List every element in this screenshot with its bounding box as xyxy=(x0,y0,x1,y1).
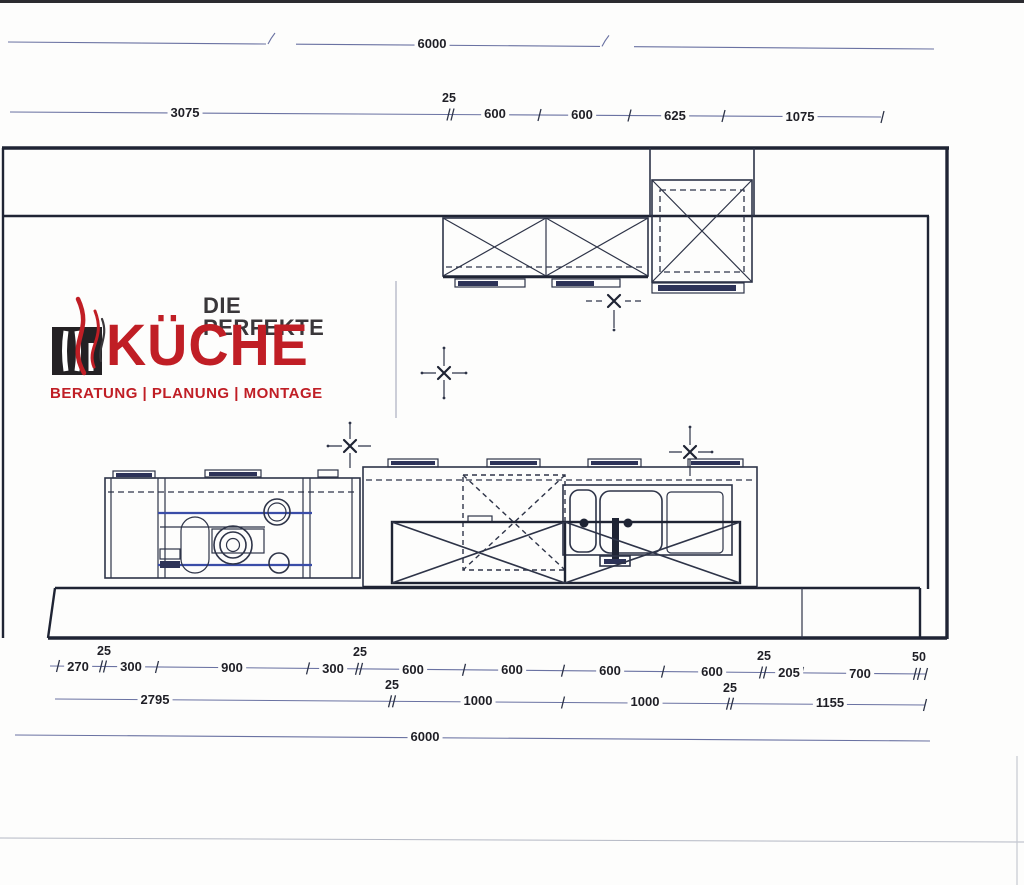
dimension-line-top-total xyxy=(8,33,934,49)
scanned-kitchen-plan: DIE PERFEKTE KÜCHE BERATUNG | PLANUNG | … xyxy=(0,0,1024,885)
dim-mid-3: 1000 xyxy=(628,695,663,709)
dim-mid-5: 1155 xyxy=(813,696,847,710)
dim-upper-2: 600 xyxy=(481,107,509,121)
tall-wall-cabinet xyxy=(650,148,754,293)
dim-base-4: 300 xyxy=(319,662,347,676)
dim-base-9: 600 xyxy=(698,665,726,679)
dim-base-2: 300 xyxy=(117,660,145,674)
dim-mid-0: 2795 xyxy=(138,693,173,707)
dim-base-12: 700 xyxy=(846,667,874,681)
dim-base-8: 600 xyxy=(596,664,624,678)
dim-mid-4: 25 xyxy=(721,682,739,696)
light-symbol-under-cabinet xyxy=(586,295,641,331)
logo-tagline-bottom: BERATUNG | PLANUNG | MONTAGE xyxy=(50,386,323,401)
upper-wall-cabinets xyxy=(443,218,648,287)
dim-base-1: 25 xyxy=(95,645,113,659)
dim-base-10: 25 xyxy=(755,650,773,664)
dim-base-3: 900 xyxy=(218,661,246,675)
light-symbol-left xyxy=(327,422,371,468)
dim-base-0: 270 xyxy=(64,660,92,674)
dim-base-11: 205 xyxy=(775,666,803,680)
dim-base-7: 600 xyxy=(498,663,526,677)
light-symbol-right xyxy=(669,426,713,476)
logo-flame-icon xyxy=(48,293,110,383)
scan-artifacts xyxy=(0,2,1024,885)
dim-base-5: 25 xyxy=(351,646,369,660)
dimension-line-bottom-total xyxy=(15,735,930,741)
dim-total-bottom: 6000 xyxy=(408,730,443,744)
brand-logo: DIE PERFEKTE KÜCHE BERATUNG | PLANUNG | … xyxy=(46,291,356,409)
dim-mid-2: 1000 xyxy=(461,694,496,708)
plan-drawing xyxy=(0,0,1024,885)
dim-upper-3: 600 xyxy=(568,108,596,122)
dim-base-13: 50 xyxy=(910,651,928,665)
logo-brand-name: KÜCHE xyxy=(106,317,309,375)
dim-upper-4: 625 xyxy=(661,109,689,123)
floor-plinth-band xyxy=(48,588,947,638)
island-counter xyxy=(363,459,757,587)
dim-upper-0: 3075 xyxy=(168,106,203,120)
cooktop xyxy=(158,499,312,573)
light-symbol-center xyxy=(421,347,468,400)
dimension-line-upper-chain xyxy=(10,109,884,124)
base-cabinet-cooktop xyxy=(105,470,360,578)
dim-mid-1: 25 xyxy=(383,679,401,693)
dim-upper-5: 1075 xyxy=(783,110,818,124)
dim-upper-1: 25 xyxy=(440,92,458,106)
dim-total-top: 6000 xyxy=(415,37,450,51)
dim-base-6: 600 xyxy=(399,663,427,677)
